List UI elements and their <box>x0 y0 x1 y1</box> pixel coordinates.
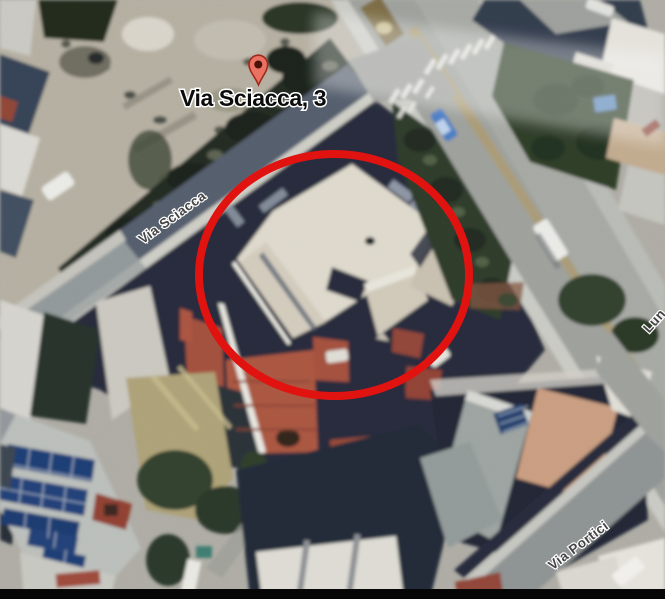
svg-text:Via Sciacca, 3: Via Sciacca, 3 <box>180 85 326 111</box>
